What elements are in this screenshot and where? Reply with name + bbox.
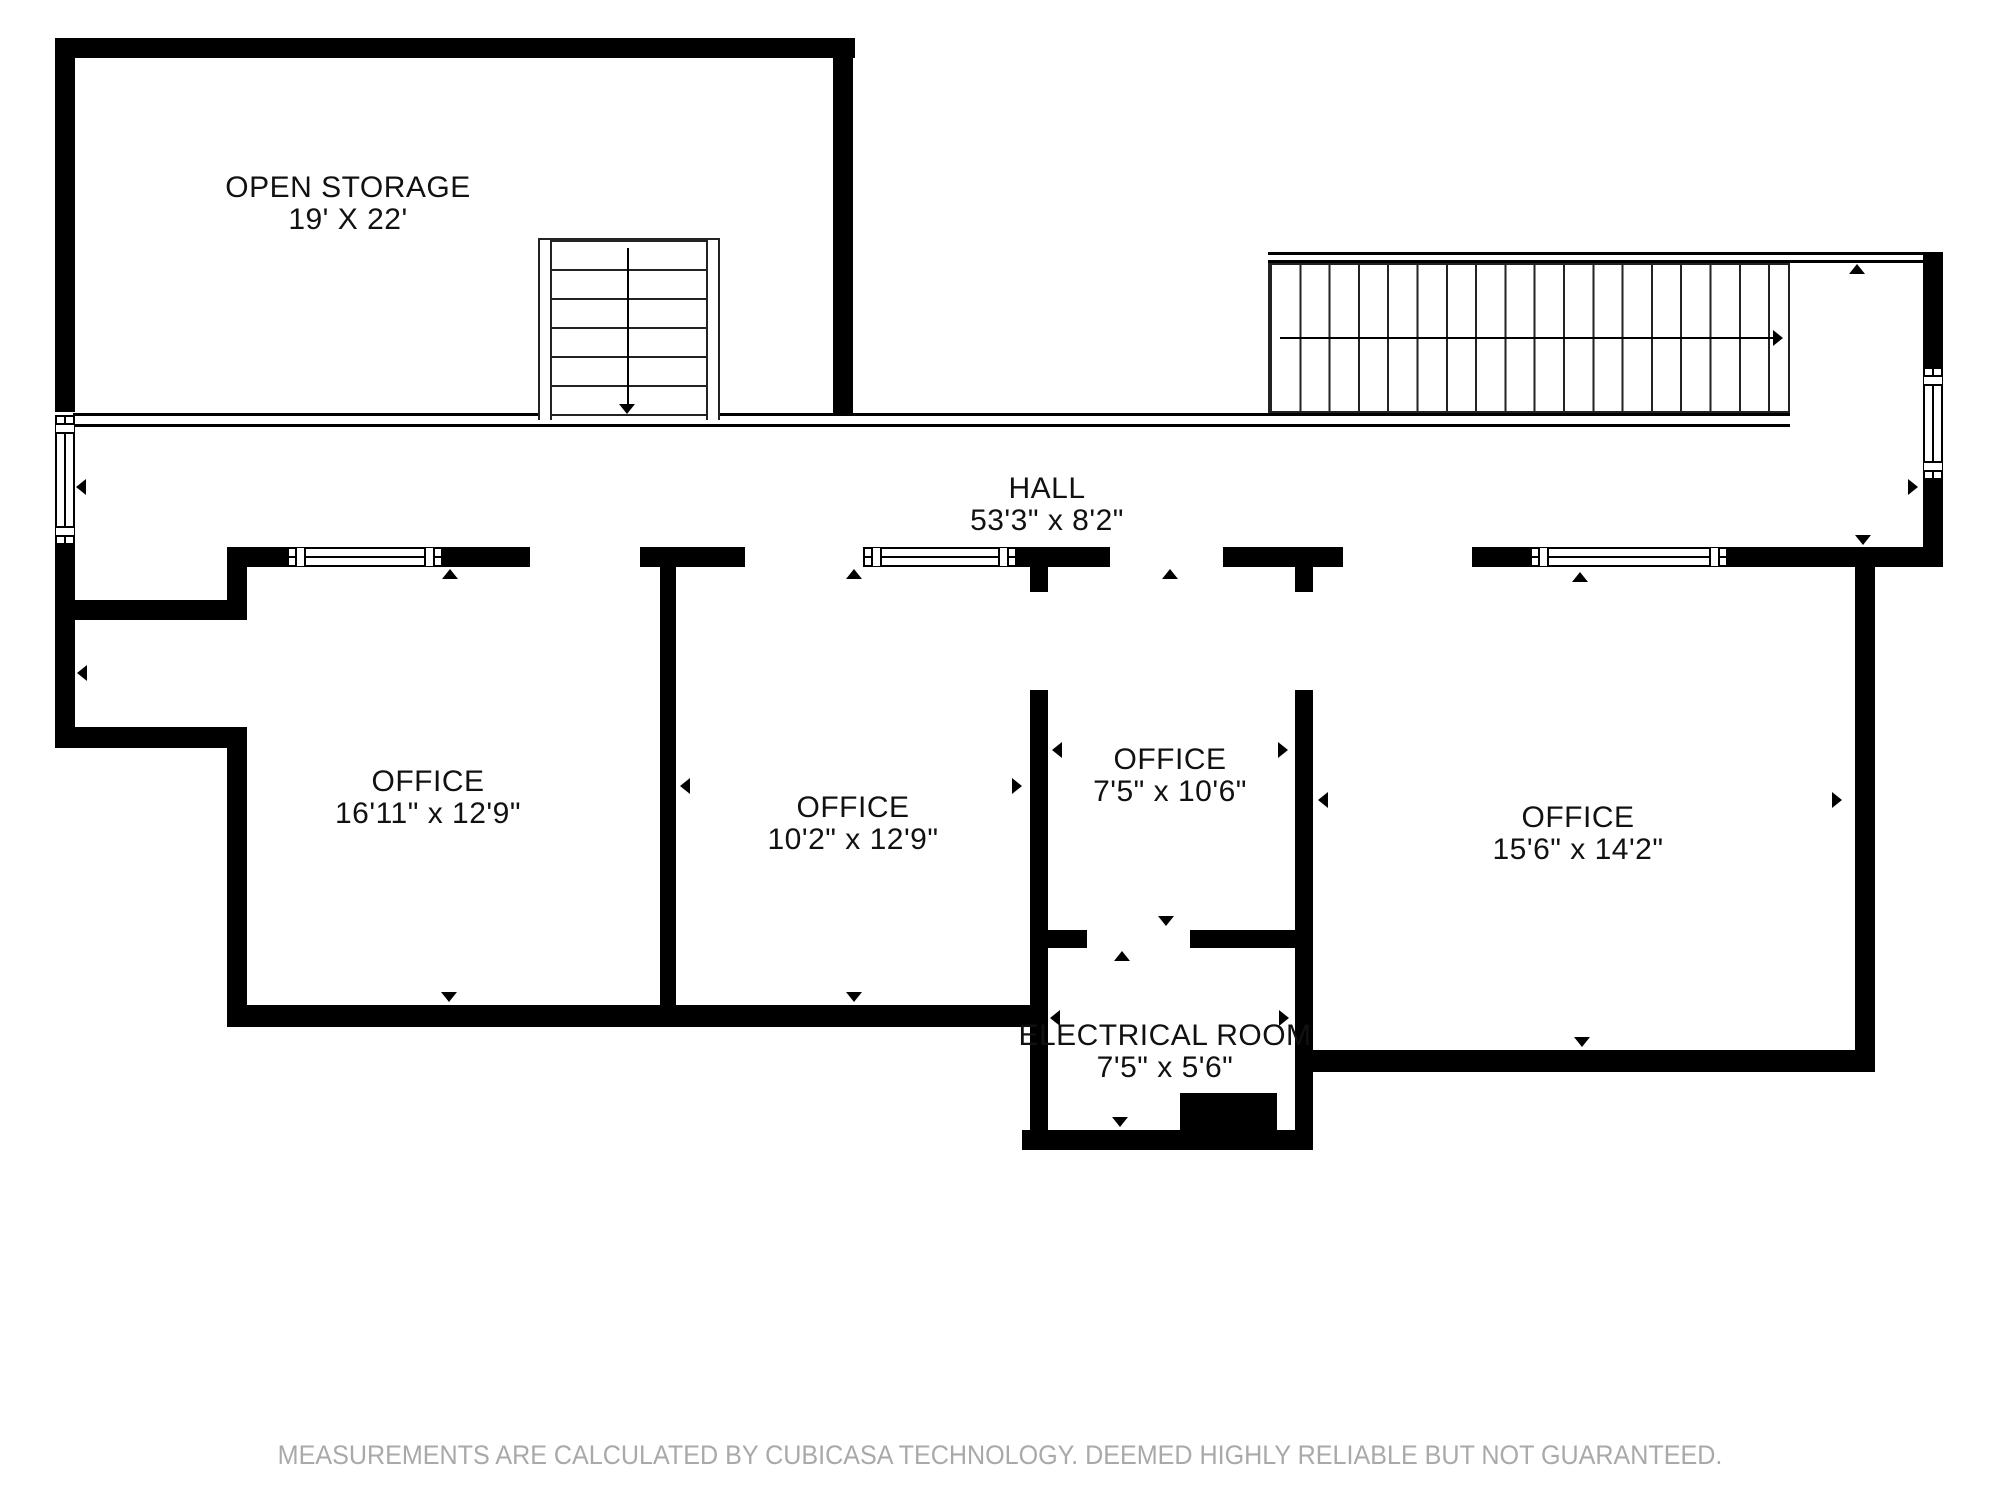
room-dimensions: 10'2" x 12'9" xyxy=(603,824,1103,856)
wall xyxy=(1190,930,1313,948)
hall-top-line xyxy=(73,424,1790,427)
wall xyxy=(55,545,75,748)
measure-arrow-icon xyxy=(846,569,862,579)
room-name: ELECTRICAL ROOM xyxy=(915,1020,1415,1052)
room-dimensions: 53'3" x 8'2" xyxy=(797,505,1297,537)
staircase-down xyxy=(550,238,708,420)
wall xyxy=(1923,252,1943,367)
floor-plan: OPEN STORAGE 19' X 22' HALL 53'3" x 8'2"… xyxy=(0,0,2000,1500)
measure-arrow-icon xyxy=(77,665,87,681)
measure-arrow-icon xyxy=(1832,792,1842,808)
window xyxy=(55,415,75,545)
wall xyxy=(1472,547,1530,567)
room-name: OFFICE xyxy=(1328,802,1828,834)
wall xyxy=(55,38,855,58)
hall-top-line xyxy=(73,413,1790,416)
disclaimer-text: MEASUREMENTS ARE CALCULATED BY CUBICASA … xyxy=(70,1440,1930,1471)
wall xyxy=(1728,547,1943,567)
room-label-electrical-room: ELECTRICAL ROOM 7'5" x 5'6" xyxy=(915,1020,1415,1084)
room-name: HALL xyxy=(797,473,1297,505)
window xyxy=(1923,367,1943,480)
electrical-panel xyxy=(1180,1093,1277,1130)
landing-edge-line xyxy=(1268,252,1943,255)
wall xyxy=(73,600,247,620)
window xyxy=(287,547,443,567)
room-label-office-4: OFFICE 15'6" x 14'2" xyxy=(1328,802,1828,866)
measure-arrow-icon xyxy=(1572,572,1588,582)
room-dimensions: 7'5" x 5'6" xyxy=(915,1052,1415,1084)
measure-arrow-icon xyxy=(1112,1117,1128,1127)
measure-arrow-icon xyxy=(1158,916,1174,926)
wall xyxy=(55,38,75,412)
wall xyxy=(1295,567,1313,592)
measure-arrow-icon xyxy=(441,992,457,1002)
room-label-office-3: OFFICE 7'5" x 10'6" xyxy=(920,744,1420,808)
room-dimensions: 19' X 22' xyxy=(98,204,598,236)
room-label-open-storage: OPEN STORAGE 19' X 22' xyxy=(98,172,598,236)
wall xyxy=(640,547,745,567)
stair-right-arrow-icon xyxy=(1773,330,1783,346)
stair-direction-line xyxy=(627,248,629,406)
wall xyxy=(1030,567,1048,592)
measure-arrow-icon xyxy=(1114,951,1130,961)
measure-arrow-icon xyxy=(1574,1037,1590,1047)
room-dimensions: 15'6" x 14'2" xyxy=(1328,834,1828,866)
measure-arrow-icon xyxy=(76,479,86,495)
measure-arrow-icon xyxy=(846,992,862,1002)
measure-arrow-icon xyxy=(1855,535,1871,545)
wall xyxy=(1017,547,1110,567)
wall xyxy=(1022,1130,1313,1150)
room-name: OFFICE xyxy=(920,744,1420,776)
wall xyxy=(1223,547,1343,567)
measure-arrow-icon xyxy=(1908,479,1918,495)
window xyxy=(1530,547,1728,567)
wall xyxy=(227,547,287,567)
wall xyxy=(1855,547,1875,1072)
wall xyxy=(73,727,247,748)
measure-arrow-icon xyxy=(1849,264,1865,274)
measure-arrow-icon xyxy=(1162,569,1178,579)
measure-arrow-icon xyxy=(442,569,458,579)
room-name: OPEN STORAGE xyxy=(98,172,598,204)
wall xyxy=(1030,930,1087,948)
stair-down-arrow-icon xyxy=(619,404,635,414)
wall xyxy=(833,38,853,415)
window xyxy=(863,547,1017,567)
stair-direction-line xyxy=(1280,337,1775,339)
room-label-hall: HALL 53'3" x 8'2" xyxy=(797,473,1297,537)
wall xyxy=(443,547,530,567)
